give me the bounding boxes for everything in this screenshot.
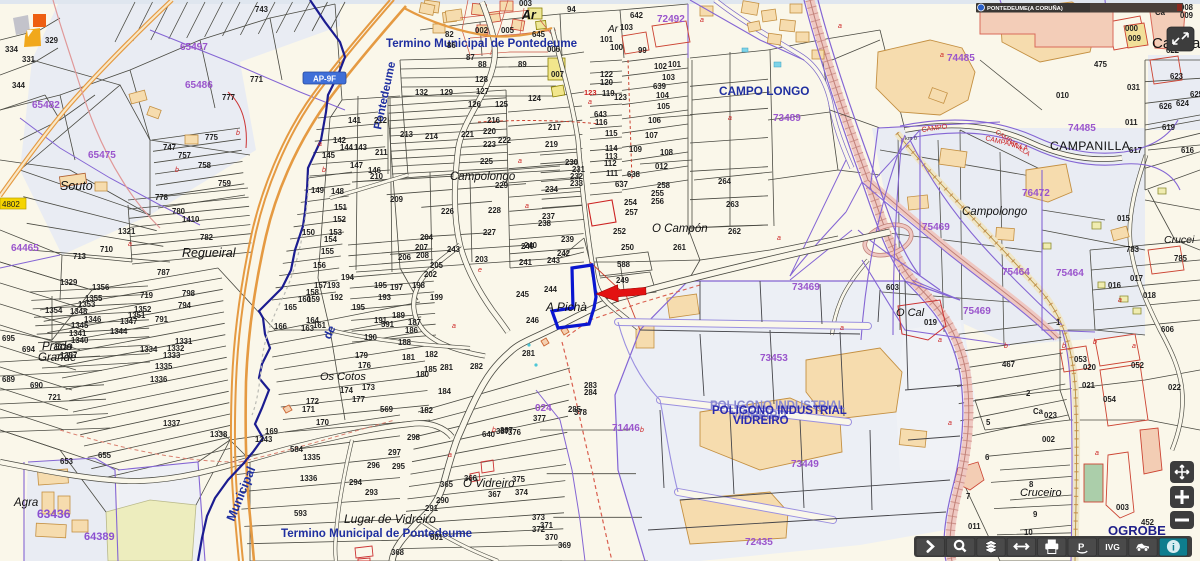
svg-text:011: 011: [1125, 118, 1138, 127]
svg-text:75469: 75469: [963, 306, 991, 317]
svg-text:743: 743: [255, 5, 269, 14]
svg-text:569: 569: [380, 405, 394, 414]
svg-text:000: 000: [1125, 24, 1139, 33]
svg-text:777: 777: [222, 93, 235, 102]
svg-text:i: i: [1172, 541, 1175, 553]
svg-text:297: 297: [388, 448, 401, 457]
svg-text:296: 296: [367, 461, 381, 470]
svg-text:a: a: [525, 203, 529, 210]
svg-text:020: 020: [1083, 363, 1097, 372]
svg-text:264: 264: [718, 177, 732, 186]
svg-text:Lugar de Vidreiro: Lugar de Vidreiro: [344, 512, 436, 526]
svg-text:169: 169: [265, 427, 279, 436]
svg-text:291: 291: [425, 504, 439, 513]
svg-text:1344: 1344: [110, 327, 128, 336]
svg-text:694: 694: [22, 345, 36, 354]
svg-text:222: 222: [498, 136, 512, 145]
svg-text:76472: 76472: [1022, 188, 1050, 199]
svg-text:376: 376: [508, 428, 522, 437]
svg-text:72435: 72435: [745, 537, 773, 548]
svg-text:102: 102: [654, 62, 668, 71]
svg-text:019: 019: [924, 318, 938, 327]
svg-text:132: 132: [415, 88, 429, 97]
svg-text:65486: 65486: [185, 80, 213, 91]
svg-text:CAMPO LONGO: CAMPO LONGO: [719, 84, 809, 98]
svg-text:1333: 1333: [163, 351, 181, 360]
svg-text:007: 007: [551, 70, 564, 79]
svg-text:642: 642: [630, 11, 644, 20]
svg-text:295: 295: [392, 462, 406, 471]
svg-text:052: 052: [1131, 361, 1145, 370]
svg-text:74485: 74485: [947, 53, 975, 64]
svg-text:AP-9F: AP-9F: [313, 75, 336, 84]
svg-text:623: 623: [1170, 72, 1184, 81]
svg-text:a: a: [940, 52, 944, 59]
svg-text:794: 794: [178, 301, 192, 310]
svg-text:1: 1: [1056, 318, 1061, 327]
svg-text:Termino Municipal de Pontedeum: Termino Municipal de Pontedeume: [281, 527, 473, 540]
svg-text:129: 129: [440, 88, 454, 97]
svg-text:012: 012: [655, 162, 669, 171]
svg-text:165: 165: [284, 303, 298, 312]
svg-text:366: 366: [464, 474, 478, 483]
svg-text:Campolongo: Campolongo: [962, 206, 1028, 218]
svg-text:115: 115: [605, 129, 618, 138]
svg-text:170: 170: [316, 418, 330, 427]
svg-text:198: 198: [412, 281, 426, 290]
svg-text:257: 257: [625, 208, 638, 217]
svg-text:246: 246: [526, 316, 540, 325]
svg-text:228: 228: [488, 206, 502, 215]
svg-text:378: 378: [574, 408, 588, 417]
svg-text:193: 193: [378, 293, 392, 302]
svg-text:100: 100: [610, 43, 624, 52]
svg-text:588: 588: [617, 260, 631, 269]
svg-text:156: 156: [313, 261, 327, 270]
svg-text:107: 107: [645, 131, 658, 140]
svg-text:239: 239: [561, 235, 575, 244]
svg-text:203: 203: [475, 255, 489, 264]
svg-text:759: 759: [218, 179, 232, 188]
svg-text:002: 002: [1042, 435, 1056, 444]
svg-text:a: a: [452, 323, 456, 330]
svg-text:73489: 73489: [773, 113, 801, 124]
svg-text:1356: 1356: [92, 283, 110, 292]
svg-text:195: 195: [374, 281, 388, 290]
svg-text:7: 7: [966, 492, 970, 501]
svg-text:176: 176: [358, 361, 372, 370]
svg-text:5: 5: [986, 418, 991, 427]
svg-text:258: 258: [657, 181, 671, 190]
svg-text:PONTEDEUME(A CORUÑA): PONTEDEUME(A CORUÑA): [987, 5, 1063, 12]
svg-text:72492: 72492: [657, 14, 685, 25]
svg-text:282: 282: [470, 362, 484, 371]
svg-text:262: 262: [728, 227, 742, 236]
svg-text:199: 199: [430, 293, 444, 302]
svg-text:64465: 64465: [11, 243, 39, 254]
svg-text:617: 617: [1129, 146, 1142, 155]
svg-text:75469: 75469: [922, 222, 950, 233]
svg-text:1335: 1335: [155, 362, 173, 371]
svg-text:1337: 1337: [60, 351, 77, 360]
svg-text:022: 022: [1168, 383, 1182, 392]
svg-text:177: 177: [352, 395, 365, 404]
svg-text:b: b: [236, 130, 240, 137]
svg-text:75464: 75464: [1002, 267, 1030, 278]
svg-text:747: 747: [163, 143, 176, 152]
svg-text:a: a: [938, 337, 942, 344]
svg-text:73453: 73453: [760, 353, 788, 364]
svg-text:791: 791: [155, 315, 169, 324]
svg-text:126: 126: [468, 100, 482, 109]
svg-text:226: 226: [441, 207, 455, 216]
svg-text:b: b: [1093, 339, 1097, 346]
svg-text:240: 240: [521, 242, 535, 251]
svg-text:054: 054: [1103, 395, 1117, 404]
svg-text:148: 148: [331, 187, 345, 196]
svg-text:031: 031: [1127, 83, 1141, 92]
svg-text:005: 005: [501, 26, 515, 35]
svg-text:205: 205: [430, 261, 444, 270]
svg-text:785: 785: [1174, 254, 1188, 263]
svg-text:149: 149: [311, 186, 325, 195]
svg-text:006: 006: [547, 45, 561, 54]
svg-text:369: 369: [558, 541, 572, 550]
svg-text:243: 243: [547, 256, 561, 265]
svg-text:782: 782: [200, 233, 214, 242]
svg-text:163: 163: [301, 324, 315, 333]
svg-text:298: 298: [407, 433, 421, 442]
svg-text:123: 123: [584, 88, 597, 97]
svg-text:180: 180: [416, 370, 430, 379]
svg-text:214: 214: [425, 132, 439, 141]
svg-text:b: b: [492, 427, 496, 434]
svg-text:778: 778: [155, 193, 169, 202]
svg-text:192: 192: [330, 293, 344, 302]
svg-text:243: 243: [447, 245, 461, 254]
svg-text:1338: 1338: [210, 430, 228, 439]
svg-text:370: 370: [545, 533, 559, 542]
svg-text:94: 94: [567, 5, 576, 14]
svg-text:290: 290: [436, 496, 450, 505]
svg-text:b: b: [322, 167, 326, 174]
svg-text:263: 263: [726, 200, 740, 209]
svg-text:6: 6: [985, 453, 990, 462]
svg-text:65497: 65497: [180, 42, 208, 53]
svg-text:625: 625: [1190, 90, 1200, 99]
svg-text:71446: 71446: [612, 423, 640, 434]
svg-text:256: 256: [651, 197, 665, 206]
svg-text:Souto: Souto: [60, 179, 93, 193]
svg-text:1329: 1329: [60, 278, 78, 287]
svg-text:86: 86: [447, 41, 456, 50]
svg-text:a: a: [588, 99, 592, 106]
svg-text:82: 82: [445, 30, 454, 39]
svg-text:145: 145: [322, 151, 336, 160]
svg-text:a: a: [728, 115, 732, 122]
svg-text:016: 016: [1108, 281, 1122, 290]
svg-text:184: 184: [438, 387, 452, 396]
svg-text:293: 293: [365, 488, 379, 497]
svg-text:Ar: Ar: [521, 8, 537, 22]
svg-text:719: 719: [140, 291, 154, 300]
svg-text:O Cal: O Cal: [896, 307, 925, 319]
svg-text:783: 783: [1126, 245, 1140, 254]
svg-text:690: 690: [30, 381, 44, 390]
svg-text:009: 009: [1128, 34, 1142, 43]
svg-text:Agra: Agra: [13, 497, 38, 509]
svg-text:182: 182: [425, 350, 439, 359]
svg-text:344: 344: [12, 81, 26, 90]
svg-text:a: a: [1132, 343, 1136, 350]
svg-text:b: b: [1004, 343, 1008, 350]
svg-text:161: 161: [313, 321, 327, 330]
svg-text:b: b: [1062, 343, 1066, 350]
svg-text:021: 021: [1082, 381, 1096, 390]
svg-text:1340: 1340: [71, 336, 89, 345]
svg-text:Crucei: Crucei: [1164, 234, 1195, 246]
svg-text:220: 220: [483, 127, 497, 136]
svg-text:645: 645: [532, 30, 546, 39]
svg-text:695: 695: [2, 334, 16, 343]
svg-text:1336: 1336: [300, 474, 318, 483]
svg-text:182: 182: [420, 406, 434, 415]
svg-text:a: a: [448, 452, 452, 459]
svg-text:591: 591: [381, 320, 395, 329]
svg-text:111: 111: [606, 169, 619, 178]
svg-text:653: 653: [60, 457, 74, 466]
svg-text:152: 152: [333, 215, 347, 224]
svg-text:a: a: [1095, 450, 1099, 457]
svg-text:186: 186: [405, 326, 419, 335]
svg-text:689: 689: [2, 375, 16, 384]
svg-text:103: 103: [620, 23, 634, 32]
svg-text:1336: 1336: [150, 375, 168, 384]
svg-text:63436: 63436: [37, 507, 71, 521]
svg-text:73449: 73449: [791, 459, 819, 470]
svg-text:475: 475: [1094, 60, 1108, 69]
svg-text:a: a: [128, 241, 132, 248]
svg-text:467: 467: [1002, 360, 1015, 369]
svg-text:8: 8: [1029, 480, 1034, 489]
svg-text:160: 160: [298, 295, 312, 304]
svg-text:174: 174: [340, 386, 354, 395]
svg-text:281: 281: [440, 363, 454, 372]
svg-text:250: 250: [621, 243, 635, 252]
svg-text:211: 211: [375, 148, 388, 157]
svg-text:334: 334: [5, 45, 19, 54]
svg-text:89: 89: [518, 60, 527, 69]
svg-text:249: 249: [616, 276, 630, 285]
svg-text:212: 212: [374, 116, 388, 125]
svg-text:4802: 4802: [2, 200, 20, 209]
svg-text:798: 798: [182, 289, 196, 298]
svg-text:101: 101: [668, 60, 682, 69]
svg-text:179: 179: [355, 351, 369, 360]
svg-text:003: 003: [1116, 503, 1130, 512]
svg-text:593: 593: [294, 509, 308, 518]
svg-text:216: 216: [487, 116, 501, 125]
svg-text:150: 150: [302, 228, 316, 237]
svg-text:143: 143: [354, 143, 368, 152]
svg-text:244: 244: [544, 285, 558, 294]
svg-text:1335: 1335: [303, 453, 321, 462]
svg-text:018: 018: [1143, 291, 1157, 300]
svg-text:65475: 65475: [88, 150, 116, 161]
svg-text:234: 234: [545, 185, 559, 194]
svg-text:166: 166: [274, 322, 288, 331]
svg-text:1354: 1354: [45, 306, 63, 315]
svg-text:a: a: [318, 141, 322, 148]
svg-text:Regueiral: Regueiral: [182, 246, 237, 260]
svg-text:127: 127: [476, 87, 489, 96]
svg-text:374: 374: [515, 488, 529, 497]
svg-text:103: 103: [662, 73, 676, 82]
svg-text:015: 015: [1117, 214, 1131, 223]
svg-text:209: 209: [390, 195, 404, 204]
svg-text:603: 603: [886, 283, 900, 292]
svg-text:99: 99: [638, 46, 647, 55]
svg-text:Os Cotos: Os Cotos: [320, 371, 366, 383]
svg-text:193: 193: [327, 281, 341, 290]
svg-text:106: 106: [648, 116, 662, 125]
svg-text:223: 223: [483, 140, 497, 149]
svg-text:a: a: [840, 325, 844, 332]
svg-text:637: 637: [615, 180, 628, 189]
svg-text:208: 208: [416, 251, 430, 260]
svg-text:A Pichà: A Pichà: [545, 300, 587, 314]
svg-text:241: 241: [519, 258, 533, 267]
svg-text:655: 655: [98, 451, 112, 460]
svg-text:Ca: Ca: [1033, 407, 1044, 416]
svg-text:151: 151: [334, 203, 348, 212]
svg-text:023: 023: [1044, 411, 1058, 420]
svg-text:294: 294: [349, 478, 363, 487]
svg-text:108: 108: [660, 148, 674, 157]
svg-text:116: 116: [595, 118, 608, 127]
svg-text:125: 125: [495, 100, 509, 109]
svg-text:281: 281: [522, 349, 536, 358]
svg-text:181: 181: [402, 353, 416, 362]
svg-text:a: a: [838, 23, 842, 30]
svg-text:a: a: [777, 235, 781, 242]
svg-text:190: 190: [364, 333, 378, 342]
svg-text:367: 367: [488, 490, 501, 499]
svg-text:9: 9: [1033, 510, 1038, 519]
svg-text:O Campón: O Campón: [652, 223, 708, 235]
svg-text:195: 195: [352, 303, 366, 312]
svg-text:172: 172: [306, 397, 320, 406]
svg-text:Cruceiro: Cruceiro: [1020, 487, 1062, 499]
svg-text:km 0: km 0: [905, 136, 917, 142]
svg-text:775: 775: [205, 133, 219, 142]
svg-text:639: 639: [653, 82, 667, 91]
svg-text:a: a: [1118, 297, 1122, 304]
svg-text:638: 638: [627, 170, 641, 179]
svg-text:e: e: [478, 267, 482, 274]
svg-text:88: 88: [478, 60, 487, 69]
svg-text:OGROBE: OGROBE: [1108, 523, 1166, 538]
svg-text:112: 112: [604, 159, 617, 168]
svg-text:CAMPANILLA: CAMPANILLA: [1050, 139, 1131, 153]
svg-text:1352: 1352: [134, 305, 152, 314]
svg-text:120: 120: [600, 78, 614, 87]
svg-text:331: 331: [22, 55, 36, 64]
svg-text:188: 188: [398, 338, 412, 347]
svg-text:87: 87: [466, 53, 475, 62]
svg-text:616: 616: [1181, 146, 1195, 155]
svg-text:626: 626: [1159, 102, 1173, 111]
svg-text:73469: 73469: [792, 282, 820, 293]
svg-text:010: 010: [1056, 91, 1070, 100]
svg-text:245: 245: [516, 290, 530, 299]
svg-text:238: 238: [538, 219, 552, 228]
svg-text:VIDREIRO: VIDREIRO: [733, 415, 789, 427]
svg-text:65482: 65482: [32, 100, 60, 111]
svg-text:002: 002: [475, 26, 489, 35]
svg-text:154: 154: [324, 235, 338, 244]
svg-text:10: 10: [1024, 528, 1033, 537]
svg-text:b: b: [640, 427, 644, 434]
svg-text:261: 261: [673, 243, 687, 252]
svg-text:b: b: [175, 167, 179, 174]
svg-text:624: 624: [1176, 99, 1190, 108]
svg-text:105: 105: [657, 102, 671, 111]
svg-text:584: 584: [290, 445, 304, 454]
svg-text:206: 206: [398, 253, 412, 262]
svg-text:128: 128: [475, 75, 489, 84]
svg-text:197: 197: [390, 283, 403, 292]
svg-text:64389: 64389: [84, 531, 115, 543]
svg-text:146: 146: [368, 166, 382, 175]
svg-text:619: 619: [1162, 123, 1176, 132]
svg-text:758: 758: [198, 161, 212, 170]
svg-text:710: 710: [100, 245, 114, 254]
svg-text:252: 252: [613, 227, 627, 236]
svg-text:1321: 1321: [118, 227, 136, 236]
svg-text:233: 233: [570, 179, 584, 188]
svg-text:a: a: [700, 17, 704, 24]
svg-text:365: 365: [440, 480, 454, 489]
svg-text:017: 017: [1130, 274, 1143, 283]
svg-text:329: 329: [45, 36, 59, 45]
svg-text:75464: 75464: [1056, 268, 1084, 279]
svg-text:606: 606: [1161, 325, 1175, 334]
svg-text:225: 225: [480, 157, 494, 166]
svg-text:173: 173: [362, 383, 376, 392]
svg-text:1410: 1410: [182, 215, 200, 224]
svg-text:204: 204: [420, 233, 434, 242]
svg-text:Ar: Ar: [607, 24, 619, 35]
svg-text:757: 757: [178, 151, 191, 160]
svg-text:194: 194: [341, 273, 355, 282]
svg-text:a: a: [518, 158, 522, 165]
svg-text:217: 217: [548, 123, 561, 132]
svg-text:1343: 1343: [255, 435, 273, 444]
svg-text:721: 721: [48, 393, 62, 402]
svg-text:IVG: IVG: [1105, 542, 1120, 552]
svg-text:123: 123: [614, 93, 628, 102]
svg-text:202: 202: [424, 270, 438, 279]
svg-text:387: 387: [496, 427, 509, 436]
svg-text:144: 144: [340, 143, 354, 152]
svg-text:024: 024: [535, 403, 552, 414]
svg-text:P: P: [1078, 542, 1085, 553]
svg-text:104: 104: [656, 91, 670, 100]
svg-text:213: 213: [400, 130, 414, 139]
svg-text:713: 713: [73, 252, 87, 261]
svg-text:124: 124: [528, 94, 542, 103]
